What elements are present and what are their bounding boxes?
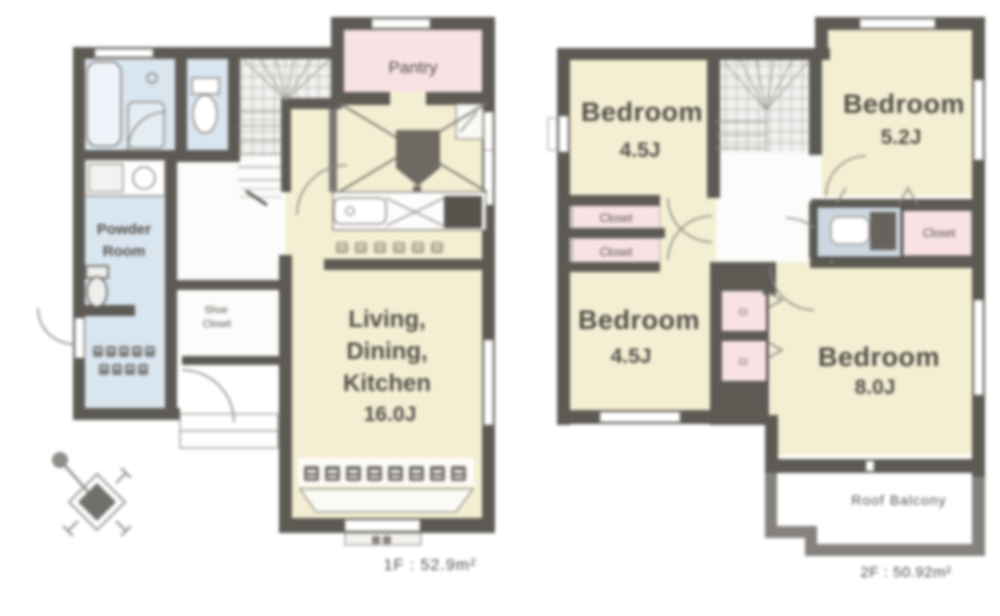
svg-text:Bedroom: Bedroom (578, 305, 700, 335)
svg-text:16.0J: 16.0J (364, 403, 417, 426)
svg-text:Closet: Closet (203, 319, 232, 330)
svg-text:1F : 52.9m²: 1F : 52.9m² (384, 557, 477, 574)
svg-text:Bedroom: Bedroom (843, 89, 965, 119)
svg-text:Kitchen: Kitchen (343, 370, 431, 397)
svg-text:Dining,: Dining, (346, 338, 427, 365)
svg-text:Roof Balcony: Roof Balcony (851, 492, 946, 508)
svg-text:Closet: Closet (923, 228, 956, 240)
svg-text:Closet: Closet (600, 213, 633, 225)
svg-text:Living,: Living, (348, 306, 425, 333)
svg-text:Room: Room (103, 243, 146, 260)
svg-text:Bedroom: Bedroom (818, 342, 940, 372)
svg-text:5.2J: 5.2J (881, 126, 922, 149)
svg-text:Cl: Cl (739, 307, 748, 317)
svg-text:Powder: Powder (97, 221, 151, 238)
svg-text:Shoe: Shoe (204, 305, 228, 316)
svg-text:4.5J: 4.5J (611, 345, 652, 368)
svg-text:Closet: Closet (600, 247, 633, 259)
svg-text:4.5J: 4.5J (620, 139, 661, 162)
svg-text:2F : 50.92m²: 2F : 50.92m² (860, 564, 951, 581)
svg-text:Bedroom: Bedroom (581, 97, 703, 127)
svg-text:Pantry: Pantry (388, 58, 438, 77)
svg-text:8.0J: 8.0J (855, 376, 896, 399)
svg-text:Cl: Cl (739, 357, 748, 367)
